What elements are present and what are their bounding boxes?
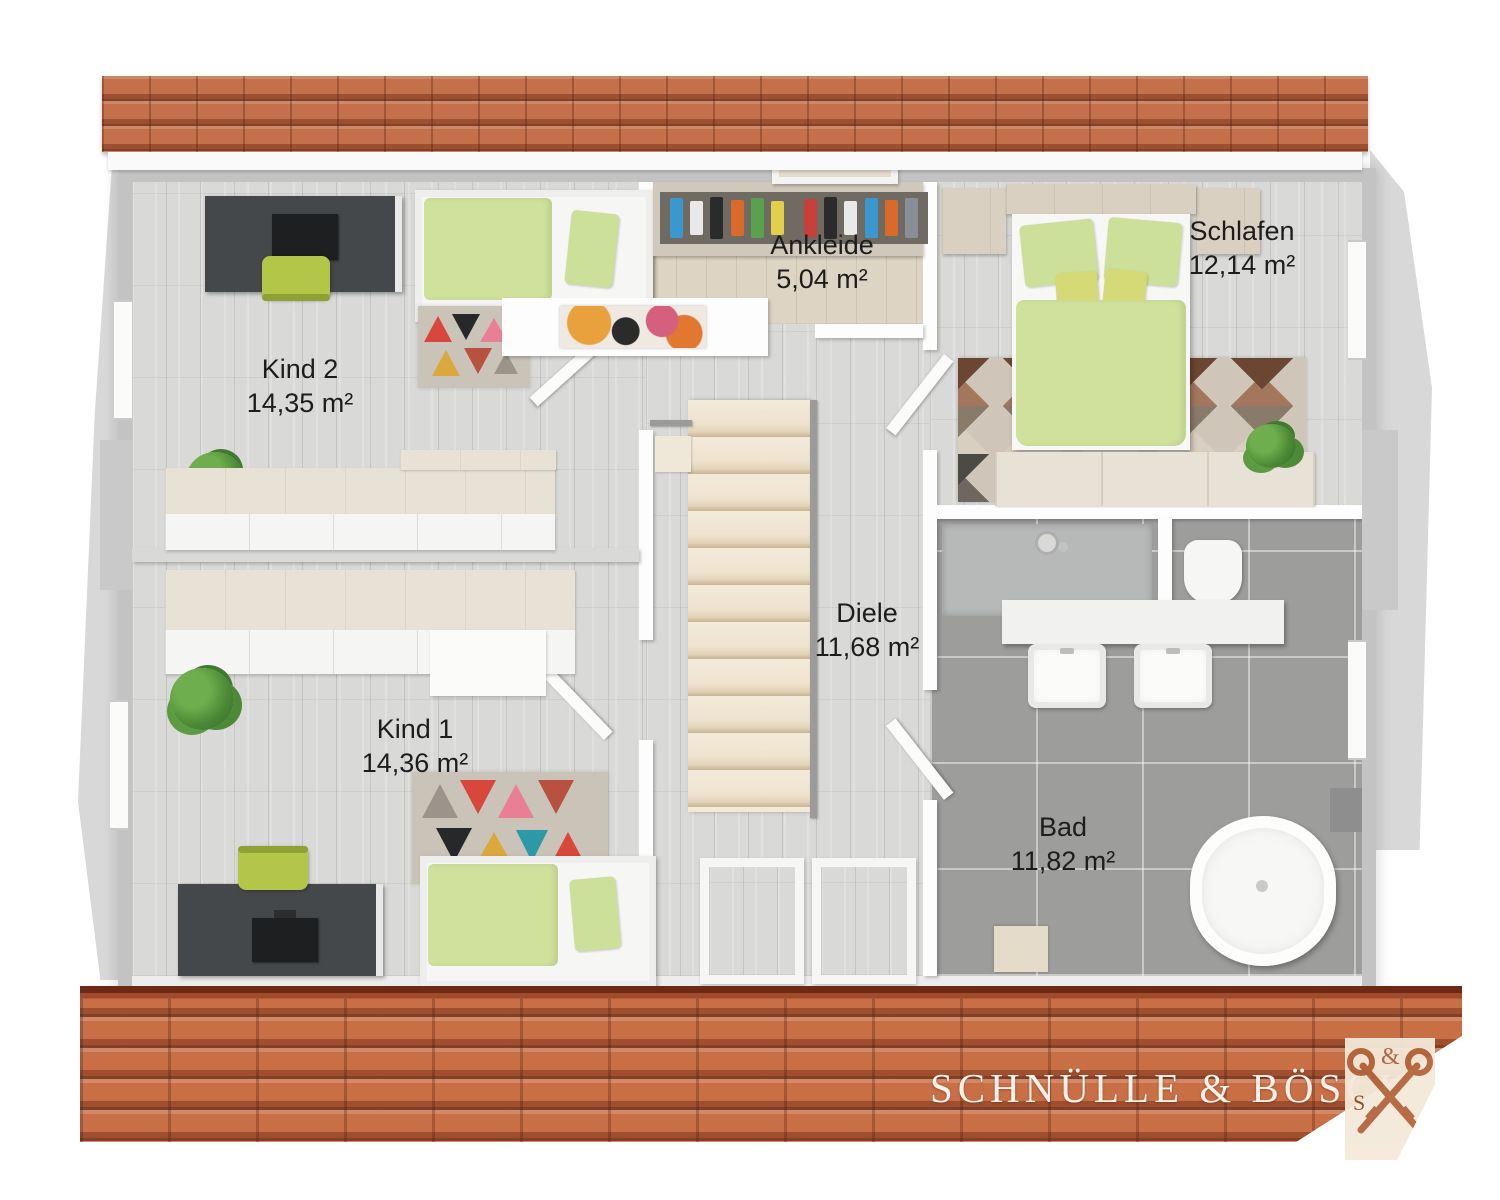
schlafen-plant xyxy=(1246,424,1296,468)
room-label-bad: Bad 11,82 m² xyxy=(943,810,1183,878)
room-name: Schlafen xyxy=(1122,214,1362,248)
room-label-kind1: Kind 1 14,36 m² xyxy=(295,712,535,780)
clothing-item xyxy=(670,198,683,238)
shower-head xyxy=(1038,534,1056,552)
kind2-chair-back xyxy=(262,294,330,301)
room-name: Kind 2 xyxy=(180,352,420,386)
kind2-bed-pillow xyxy=(564,210,619,289)
kind1-chair-back xyxy=(238,846,308,853)
kind2-sideboard-top xyxy=(165,468,555,514)
kind1-sideboard-step xyxy=(430,630,546,696)
roof-top-fascia xyxy=(108,152,1362,170)
logo-letter-s: S xyxy=(1353,1090,1365,1116)
company-name: SCHNÜLLE & BÖSCH xyxy=(930,1064,1340,1112)
faucet-right xyxy=(1166,648,1180,654)
room-area: 12,14 m² xyxy=(1122,248,1362,282)
room-label-schlafen: Schlafen 12,14 m² xyxy=(1122,214,1362,282)
schlafen-duvet xyxy=(1016,300,1186,446)
diele-roof-window-right xyxy=(812,858,916,984)
bad-toilet xyxy=(1184,540,1242,604)
room-area: 11,82 m² xyxy=(943,844,1183,878)
room-name: Kind 1 xyxy=(295,712,535,746)
wall-ankleide-diele-right xyxy=(815,324,923,338)
kind1-plant xyxy=(170,668,234,730)
roof-top-band xyxy=(102,76,1368,152)
room-area: 14,36 m² xyxy=(295,746,535,780)
room-name: Ankleide xyxy=(702,228,942,262)
schlafen-nightstand-left xyxy=(942,188,1006,254)
room-label-ankleide: Ankleide 5,04 m² xyxy=(702,228,942,296)
kind2-sideboard-front xyxy=(165,514,555,550)
pier-right xyxy=(1362,430,1398,610)
stair-rail-top xyxy=(650,420,692,426)
kind1-monitor xyxy=(252,918,318,962)
kind1-sideboard-top xyxy=(165,570,575,630)
kind2-bed-duvet xyxy=(424,198,552,300)
wall-right-vertical-lower xyxy=(923,800,937,976)
kind1-bed-duvet xyxy=(428,864,558,966)
wall-left-vertical-mid xyxy=(639,430,653,640)
pier-left xyxy=(100,440,132,590)
window-left-upper xyxy=(114,300,132,420)
floorplan-render: Kind 2 14,35 m² Ankleide 5,04 m² Schlafe… xyxy=(0,0,1500,1200)
company-logo: & S xyxy=(1345,1038,1435,1160)
bad-vanity-counter xyxy=(1002,600,1284,644)
wall-kind2-kind1 xyxy=(132,548,639,562)
wall-artwork xyxy=(560,306,706,348)
room-area: 11,68 m² xyxy=(747,630,987,664)
bad-pillar xyxy=(1330,788,1362,832)
logo-ampersand: & xyxy=(1381,1044,1400,1071)
room-area: 14,35 m² xyxy=(180,386,420,420)
wall-schlafen-bad xyxy=(937,505,1362,519)
diele-cabinet xyxy=(655,436,691,472)
diele-roof-window-left xyxy=(700,858,804,984)
window-left-lower xyxy=(110,700,128,830)
bad-mat xyxy=(994,926,1048,972)
bathtub-drain xyxy=(1256,880,1268,892)
room-label-diele: Diele 11,68 m² xyxy=(747,596,987,664)
room-name: Diele xyxy=(747,596,987,630)
room-name: Bad xyxy=(943,810,1183,844)
room-area: 5,04 m² xyxy=(702,262,942,296)
window-right-bad xyxy=(1348,640,1366,760)
kind1-monitor-stand xyxy=(274,910,296,918)
kind2-sideboard-step xyxy=(400,450,556,470)
kind1-bed-pillow xyxy=(569,876,621,952)
schlafen-bed-headboard xyxy=(1006,184,1196,214)
faucet-left xyxy=(1060,648,1074,654)
kind2-monitor xyxy=(272,214,338,260)
roof-ridge xyxy=(80,986,1462,1004)
room-label-kind2: Kind 2 14,35 m² xyxy=(180,352,420,420)
